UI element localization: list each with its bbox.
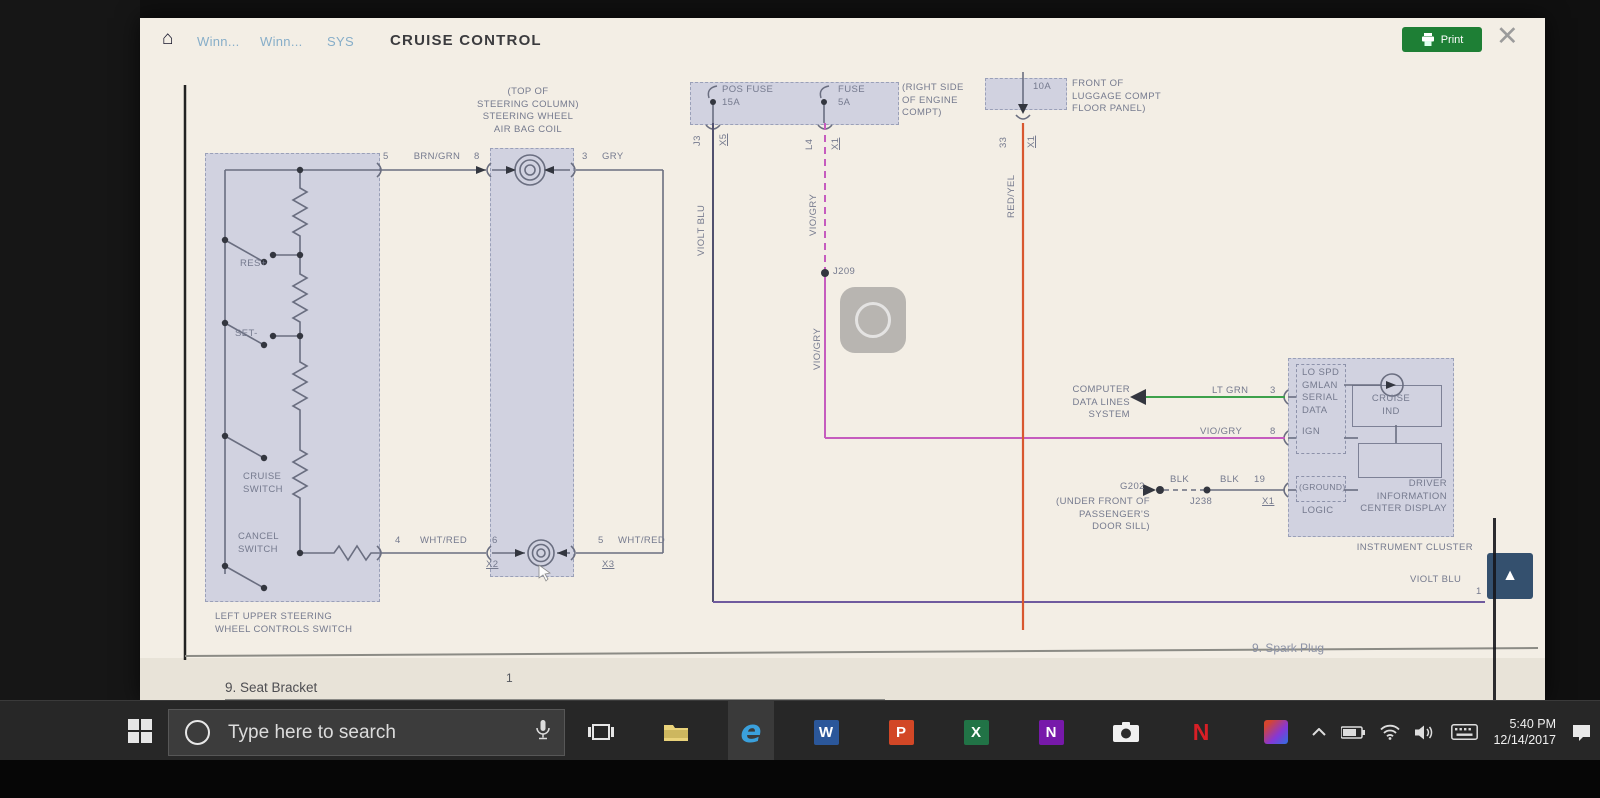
wire-vio-gry-vert2: VIO/GRY <box>812 328 825 370</box>
tray-date: 12/14/2017 <box>1493 732 1556 748</box>
home-icon[interactable]: ⌂ <box>162 28 173 50</box>
res-label: RES+ <box>240 258 267 271</box>
pin-5b: 5 <box>598 535 604 548</box>
keyboard-icon[interactable] <box>1451 724 1478 740</box>
cruise-ind-label: CRUISE IND <box>1355 393 1427 418</box>
switch-assembly-caption: LEFT UPPER STEERING WHEEL CONTROLS SWITC… <box>215 611 352 636</box>
underlay-seat-bracket: 9. Seat Bracket <box>225 680 885 700</box>
powerpoint-icon[interactable]: P <box>878 701 924 763</box>
wire-violt-blu-bot: VIOLT BLU <box>1410 574 1461 587</box>
splice-j238: J238 <box>1190 496 1212 509</box>
fuse-10a-label: 10A <box>1033 81 1051 94</box>
computer-data-lines-label: COMPUTER DATA LINES SYSTEM <box>1040 384 1130 422</box>
dots-and-arrows <box>222 99 1396 591</box>
fuse2-label: FUSE 5A <box>838 84 865 109</box>
battery-icon[interactable] <box>1341 726 1365 739</box>
wire-blk-a: BLK <box>1170 474 1189 487</box>
windows-logo-icon <box>128 719 139 730</box>
wire-wht-red-l: WHT/RED <box>420 535 467 548</box>
splice-j209: J209 <box>833 266 855 279</box>
camera-icon[interactable] <box>1103 701 1149 763</box>
pin-5a: 5 <box>383 151 389 164</box>
pin-1: 1 <box>1476 586 1482 599</box>
scroll-up-icon: ▲ <box>1502 567 1518 585</box>
taskbar-app-icons: e W P X N N <box>578 701 1299 763</box>
photo-cable-artifact <box>1493 518 1496 700</box>
conn-x5: X5 <box>718 134 731 146</box>
tray-time: 5:40 PM <box>1493 716 1556 732</box>
system-tray: 5:40 PM 12/14/2017 <box>1312 701 1592 763</box>
cluster-ground-label: (GROUND) <box>1299 481 1346 494</box>
wire-gry: GRY <box>602 151 624 164</box>
wiring-diagram-window: ⌂ Winn... Winn... SYS CRUISE CONTROL Pri… <box>140 18 1545 700</box>
excel-icon[interactable]: X <box>953 701 999 763</box>
airbag-coil-label: (TOP OF STEERING COLUMN) STEERING WHEEL … <box>452 86 604 136</box>
ground-g202: G202 <box>1120 481 1145 494</box>
photo-bottom-bezel <box>0 760 1600 798</box>
set-label: SET- <box>235 328 258 341</box>
conn-33: 33 <box>998 137 1011 148</box>
wire-wht-red-r: WHT/RED <box>618 535 665 548</box>
touch-cursor-overlay <box>840 287 906 353</box>
printer-icon <box>1421 33 1435 46</box>
cancel-switch-label: CANCEL SWITCH <box>238 531 279 556</box>
underlay-left-text: 9. Seat Bracket <box>225 680 317 695</box>
cortana-icon <box>185 720 210 745</box>
speaker-icon[interactable] <box>1415 724 1436 741</box>
page-title: CRUISE CONTROL <box>390 32 542 49</box>
steering-wheel-switch-box <box>205 153 380 602</box>
taskbar-search[interactable]: Type here to search <box>168 709 565 756</box>
conn-l4: L4 <box>804 139 817 150</box>
wire-vio-gry-h: VIO/GRY <box>1200 426 1242 439</box>
netflix-icon[interactable]: N <box>1178 701 1224 763</box>
edge-browser-icon[interactable]: e <box>728 701 774 763</box>
fuse1-label: POS FUSE 15A <box>722 84 773 109</box>
pin-8b: 8 <box>1270 426 1276 439</box>
conn-x3: X3 <box>602 559 614 572</box>
microphone-icon[interactable] <box>536 720 550 745</box>
print-button[interactable]: Print <box>1402 27 1482 52</box>
file-explorer-icon[interactable] <box>653 701 699 763</box>
underlay-spark-plug: 9. Spark Plug <box>1252 641 1324 655</box>
task-view-icon[interactable] <box>578 701 624 763</box>
wire-violt-blu-vert: VIOLT BLU <box>696 205 709 256</box>
action-center-icon[interactable] <box>1571 723 1592 742</box>
windows-taskbar: Type here to search e W P X N N <box>0 700 1600 763</box>
pin-4: 4 <box>395 535 401 548</box>
touch-ring <box>855 302 891 338</box>
ground-location-label: (UNDER FRONT OF PASSENGER'S DOOR SILL) <box>1025 496 1150 534</box>
start-button[interactable] <box>128 719 154 745</box>
close-icon[interactable]: ✕ <box>1496 21 1519 52</box>
conn-x1c: X1 <box>1262 496 1274 509</box>
conn-x2: X2 <box>486 559 498 572</box>
dic-label: DRIVER INFORMATION CENTER DISPLAY <box>1355 478 1447 516</box>
wire-blk-b: BLK <box>1220 474 1239 487</box>
display-box <box>1358 443 1442 478</box>
instrument-cluster-caption: INSTRUMENT CLUSTER <box>1345 542 1473 555</box>
wire-red-yel: RED/YEL <box>1006 175 1019 218</box>
breadcrumb-1[interactable]: Winn... <box>197 34 240 49</box>
airbag-coil-box <box>490 148 574 577</box>
page-number: 1 <box>506 671 513 685</box>
breadcrumb-2[interactable]: Winn... <box>260 34 303 49</box>
conn-x1a: X1 <box>830 138 843 150</box>
search-placeholder-text: Type here to search <box>228 722 396 744</box>
pin-19: 19 <box>1254 474 1265 487</box>
wire-vio-gry-vert1: VIO/GRY <box>808 194 821 236</box>
pin-8a: 8 <box>474 151 480 164</box>
word-icon[interactable]: W <box>803 701 849 763</box>
wire-lt-grn: LT GRN <box>1212 385 1248 398</box>
luggage-location-label: FRONT OF LUGGAGE COMPT FLOOR PANEL) <box>1072 78 1161 116</box>
luggage-fuse-box <box>985 78 1067 110</box>
onenote-icon[interactable]: N <box>1028 701 1074 763</box>
colorful-app-icon[interactable] <box>1253 701 1299 763</box>
cluster-logic-label: LOGIC <box>1302 505 1334 518</box>
wire-brn-grn: BRN/GRN <box>402 151 472 164</box>
print-label: Print <box>1441 34 1464 46</box>
cluster-ign-label: IGN <box>1302 426 1320 439</box>
wifi-icon[interactable] <box>1380 724 1400 740</box>
cruise-switch-label: CRUISE SWITCH <box>243 471 283 496</box>
breadcrumb-sys[interactable]: SYS <box>327 34 354 49</box>
tray-clock[interactable]: 5:40 PM 12/14/2017 <box>1493 716 1556 748</box>
cluster-serial-label: LO SPD GMLAN SERIAL DATA <box>1302 367 1339 417</box>
photo-left-bezel <box>0 0 140 798</box>
conn-j3: J3 <box>692 135 705 146</box>
pin-3b: 3 <box>1270 385 1276 398</box>
pin-6: 6 <box>492 535 498 548</box>
pin-3a: 3 <box>582 151 588 164</box>
engine-compt-label: (RIGHT SIDE OF ENGINE COMPT) <box>902 82 964 120</box>
tray-chevron-icon[interactable] <box>1312 728 1326 737</box>
conn-x1b: X1 <box>1026 136 1039 148</box>
